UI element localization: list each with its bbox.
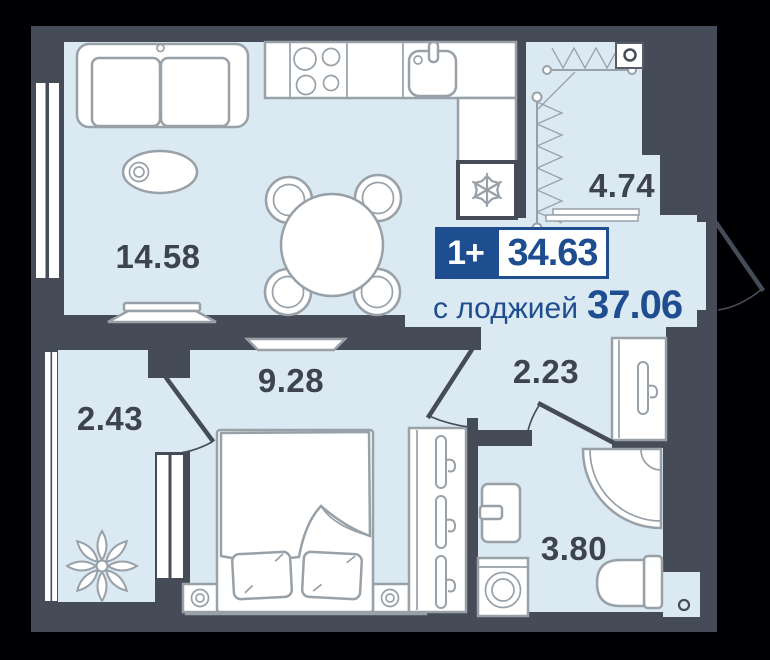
apartment-type-badge: 1+ [435, 227, 496, 279]
hallway-wardrobe [612, 338, 666, 440]
room-area-label-hallway: 2.23 [513, 353, 579, 391]
living-window [36, 83, 59, 278]
loggia-vent-box [616, 43, 643, 68]
fridge [458, 162, 516, 218]
room-area-label-loggia: 4.74 [589, 167, 655, 205]
entrance-door-swing [717, 224, 762, 310]
washing-machine [478, 558, 528, 616]
dining-set [265, 175, 401, 315]
dining-table [281, 194, 383, 296]
room-area-label-balcony: 2.43 [77, 400, 143, 438]
floorplan-graphics [0, 0, 770, 660]
coffee-table [123, 151, 197, 193]
room-area-label-bathroom: 3.80 [541, 530, 607, 568]
room-area-label-bedroom: 9.28 [258, 362, 324, 400]
bathroom-sink [480, 484, 520, 542]
floorplan: 14.58 4.74 2.43 9.28 2.23 3.80 1+ 34.63 … [0, 0, 770, 660]
area-with-loggia: с лоджией 37.06 [433, 283, 682, 328]
toilet-tank [644, 556, 662, 608]
bedroom-tv [247, 339, 345, 350]
pillow [302, 552, 362, 600]
room-area-label-living-kitchen: 14.58 [115, 238, 200, 276]
apartment-badge: 1+ 34.63 [435, 227, 609, 279]
plant-icon [67, 531, 137, 601]
entry-door-notch [697, 222, 706, 310]
apartment-area-value: 34.63 [496, 227, 609, 279]
balcony-window [45, 352, 57, 601]
faucet-icon [429, 42, 438, 62]
nightstand-left [183, 584, 219, 612]
living-tv-console [108, 303, 216, 322]
faucet-icon [480, 506, 502, 519]
area-with-loggia-label: с лоджией [433, 292, 578, 326]
loggia-sill [546, 209, 639, 221]
area-with-loggia-value: 37.06 [587, 283, 682, 328]
bedroom-wardrobe [409, 428, 466, 612]
nightstand-right [373, 584, 409, 612]
sofa [77, 44, 248, 127]
bed [217, 430, 373, 612]
bedroom-balcony-window [157, 455, 183, 578]
pillow [232, 552, 292, 600]
